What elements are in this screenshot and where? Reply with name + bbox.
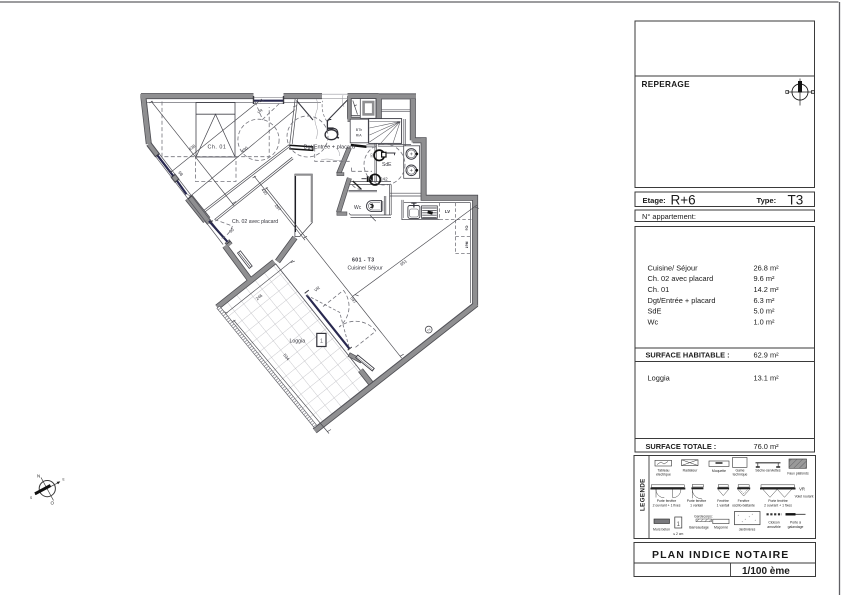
svg-text:Radiateur: Radiateur <box>683 469 699 473</box>
svg-text:Jardinières: Jardinières <box>739 528 756 532</box>
svg-text:≤ 2 cm: ≤ 2 cm <box>673 532 683 536</box>
svg-text:13.1 m²: 13.1 m² <box>754 374 780 383</box>
svg-text:SURFACE TOTALE :: SURFACE TOTALE : <box>646 442 717 451</box>
svg-text:LV: LV <box>445 209 450 214</box>
svg-text:E: E <box>63 478 65 482</box>
svg-text:Wc: Wc <box>648 317 659 326</box>
svg-text:galandage: galandage <box>788 525 804 529</box>
svg-text:BTh: BTh <box>356 128 362 132</box>
svg-text:SdE: SdE <box>648 307 662 316</box>
svg-text:Dgt/Entrée + placard: Dgt/Entrée + placard <box>648 296 716 305</box>
svg-text:PLAN INDICE NOTAIRE: PLAN INDICE NOTAIRE <box>652 549 789 561</box>
svg-text:Cuisine/ Séjour: Cuisine/ Séjour <box>648 263 699 272</box>
svg-text:6.3 m²: 6.3 m² <box>754 296 775 305</box>
svg-text:Cuisine/ Séjour: Cuisine/ Séjour <box>348 266 383 272</box>
svg-text:Ch. 02 avec placard: Ch. 02 avec placard <box>648 274 714 283</box>
svg-text:2 ouvrant + 1 fixes: 2 ouvrant + 1 fixes <box>764 503 792 507</box>
svg-text:amovible: amovible <box>767 525 781 529</box>
svg-text:LEGENDE: LEGENDE <box>640 478 647 511</box>
svg-text:électrique: électrique <box>656 473 671 477</box>
svg-text:1: 1 <box>320 338 324 345</box>
svg-text:Murs béton: Murs béton <box>653 528 670 532</box>
svg-text:Ref: Ref <box>465 242 470 249</box>
svg-text:Loggia: Loggia <box>290 339 306 345</box>
svg-text:Ch. 01: Ch. 01 <box>648 285 670 294</box>
svg-text:Dgt/Entrée + placard: Dgt/Entrée + placard <box>304 144 355 150</box>
svg-text:Gardecorps:: Gardecorps: <box>694 515 713 519</box>
svg-text:Ch. 01: Ch. 01 <box>208 145 227 151</box>
svg-text:Wc: Wc <box>354 205 362 211</box>
svg-text:T3: T3 <box>788 192 804 207</box>
svg-text:Faux plafonds: Faux plafonds <box>787 472 809 476</box>
svg-text:Volet roulant: Volet roulant <box>795 495 814 499</box>
svg-text:242: 242 <box>380 176 388 181</box>
svg-text:Etage:: Etage: <box>643 196 666 205</box>
svg-text:76.0 m²: 76.0 m² <box>754 442 780 451</box>
svg-text:SdE: SdE <box>382 162 392 168</box>
svg-text:Ch. 02 avec placard: Ch. 02 avec placard <box>232 219 278 225</box>
svg-text:N: N <box>37 474 40 479</box>
svg-text:N° appartement:: N° appartement: <box>642 212 696 221</box>
svg-text:Ce: Ce <box>465 226 470 232</box>
svg-text:S: S <box>30 496 32 500</box>
svg-text:1/100 ème: 1/100 ème <box>742 566 790 577</box>
svg-text:Sèche-serviettes: Sèche-serviettes <box>755 469 781 473</box>
svg-text:62.9 m²: 62.9 m² <box>754 351 780 360</box>
svg-text:5.0 m²: 5.0 m² <box>754 307 775 316</box>
svg-text:RIA: RIA <box>356 134 363 138</box>
svg-text:2 ouvrant + 1 fixes: 2 ouvrant + 1 fixes <box>653 503 681 507</box>
svg-text:R+6: R+6 <box>671 192 696 207</box>
svg-text:1 vantail: 1 vantail <box>690 503 703 507</box>
svg-text:1 vantail: 1 vantail <box>717 503 730 507</box>
svg-text:SURFACE HABITABLE :: SURFACE HABITABLE : <box>646 351 730 360</box>
svg-text:14.2 m²: 14.2 m² <box>754 285 780 294</box>
svg-text:Loggia: Loggia <box>648 374 671 383</box>
svg-text:Barreaudage: Barreaudage <box>689 526 709 530</box>
svg-text:601 - T3: 601 - T3 <box>352 258 375 264</box>
svg-text:Moquette: Moquette <box>712 469 726 473</box>
svg-text:26.8 m²: 26.8 m² <box>754 263 780 272</box>
svg-text:O: O <box>51 501 55 506</box>
svg-text:REPERAGE: REPERAGE <box>642 80 691 89</box>
svg-text:9.6 m²: 9.6 m² <box>754 274 775 283</box>
svg-text:VR: VR <box>799 487 805 492</box>
svg-text:technique: technique <box>733 473 748 477</box>
svg-text:Type:: Type: <box>757 196 777 205</box>
svg-text:oscillo-battante: oscillo-battante <box>732 503 755 507</box>
svg-text:1.0 m²: 1.0 m² <box>754 317 775 326</box>
svg-text:Maçonné: Maçonné <box>714 526 728 530</box>
